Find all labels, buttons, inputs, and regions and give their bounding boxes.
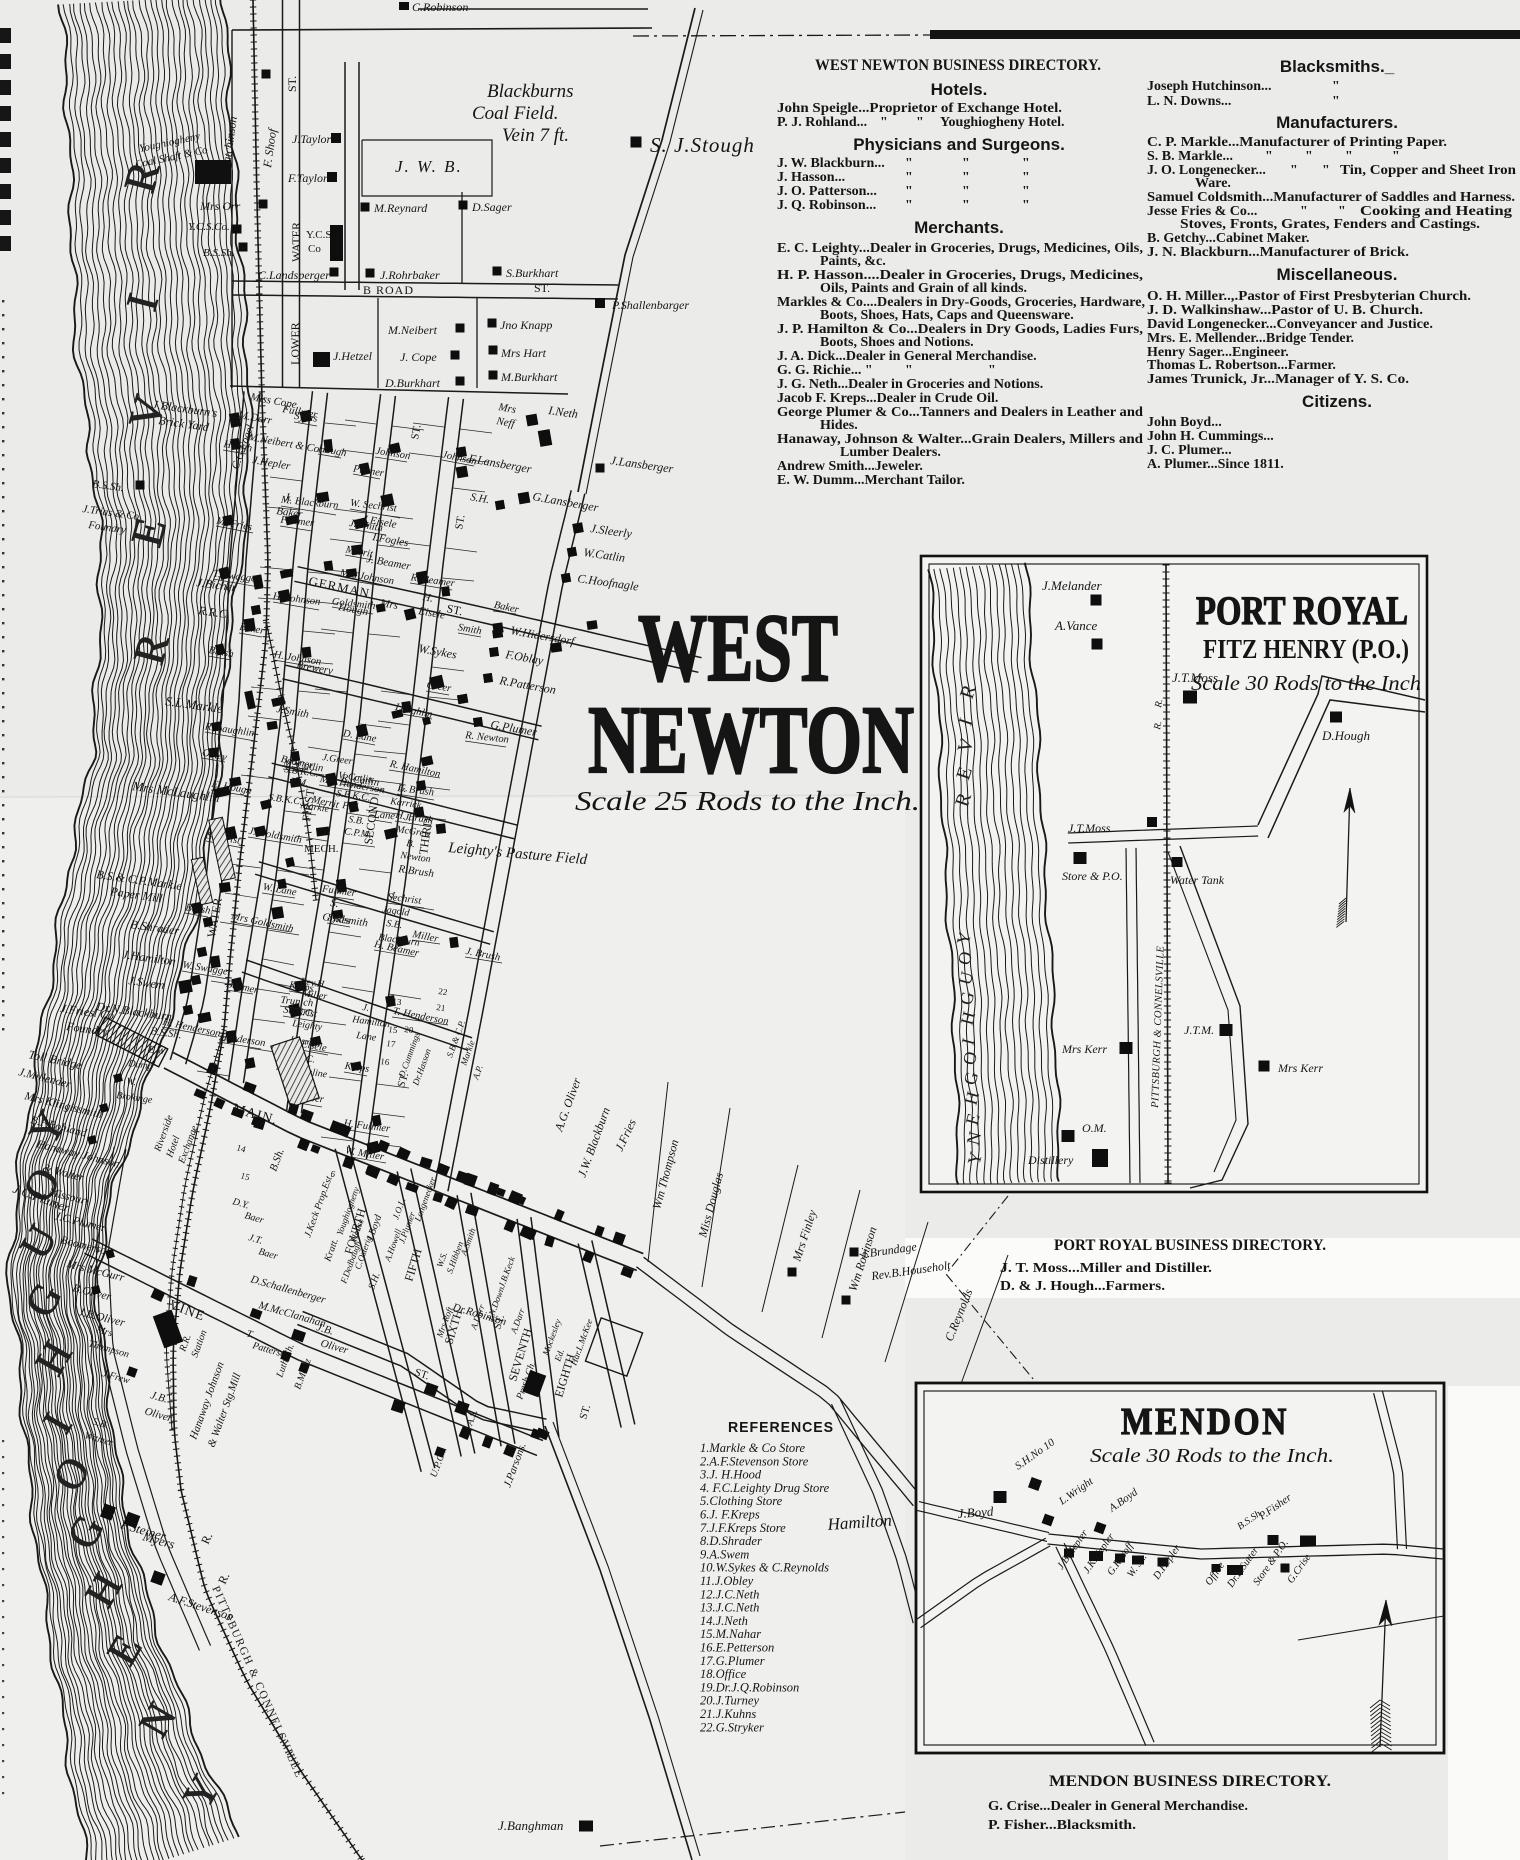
svg-text:16.E.Petterson: 16.E.Petterson (700, 1641, 774, 1655)
svg-text:E. W. Dumm...Merchant Tailor.: E. W. Dumm...Merchant Tailor. (777, 473, 965, 488)
svg-text:Hotels.: Hotels. (931, 80, 988, 99)
svg-text:J. C. Plumer...: J. C. Plumer... (1147, 443, 1232, 458)
svg-text:19.Dr.J.Q.Robinson: 19.Dr.J.Q.Robinson (700, 1680, 799, 1694)
svg-text:": " (1290, 163, 1298, 178)
svg-text:P.Shallenbarger: P.Shallenbarger (611, 298, 689, 312)
svg-text:J.T.Moss: J.T.Moss (1068, 821, 1111, 835)
svg-text:J.Boyd: J.Boyd (957, 1504, 994, 1521)
svg-text:J. T. Moss...Miller and Distil: J. T. Moss...Miller and Distiller. (1000, 1261, 1212, 1276)
svg-text:Jacob F. Kreps...Dealer in Cru: Jacob F. Kreps...Dealer in Crude Oil. (777, 391, 998, 406)
svg-text:J.T.M.: J.T.M. (1184, 1023, 1214, 1037)
svg-text:C. P. Markle...Manufacturer of: C. P. Markle...Manufacturer of Printing … (1147, 135, 1447, 150)
svg-text:S.: S. (330, 897, 340, 910)
svg-text:REFERENCES: REFERENCES (728, 1419, 834, 1436)
svg-text:P. J. Rohland...: P. J. Rohland... (777, 115, 867, 130)
svg-text:F.Taylor: F.Taylor (287, 171, 328, 185)
svg-text:PORT ROYAL: PORT ROYAL (1196, 588, 1408, 633)
svg-text:O.M.: O.M. (1082, 1121, 1107, 1135)
svg-text:J.Melander: J.Melander (1042, 578, 1103, 593)
svg-text:": " (1022, 156, 1030, 171)
svg-text:ST.: ST. (409, 424, 423, 441)
svg-text:J.Hetzel: J.Hetzel (333, 349, 373, 363)
svg-text:10.W.Sykes & C.Reynolds: 10.W.Sykes & C.Reynolds (700, 1561, 829, 1575)
svg-text:Y.C.S.Co.: Y.C.S.Co. (188, 221, 230, 233)
svg-text:W.: W. (126, 1076, 137, 1088)
svg-text:1.Markle & Co Store: 1.Markle & Co Store (700, 1441, 806, 1455)
svg-text:M.Neibert: M.Neibert (387, 323, 438, 337)
svg-text:D.Burkhart: D.Burkhart (384, 376, 441, 390)
svg-text:MECH.: MECH. (304, 843, 339, 855)
svg-text:Scale 30 Rods to the Inch.: Scale 30 Rods to the Inch. (1090, 1445, 1334, 1467)
svg-text:": " (905, 363, 913, 378)
svg-text:Boots, Shoes, Hats, Caps and Q: Boots, Shoes, Hats, Caps and Queensware. (820, 308, 1074, 323)
svg-text:Boots, Shoes and Notions.: Boots, Shoes and Notions. (820, 335, 974, 350)
svg-text:": " (962, 198, 970, 213)
svg-text:8.D.Shrader: 8.D.Shrader (700, 1534, 762, 1548)
svg-text:James Trunick, Jr...Manager of: James Trunick, Jr...Manager of Y. S. Co. (1147, 372, 1409, 387)
svg-text:Ware.: Ware. (1195, 176, 1231, 191)
svg-text:Mrs Hart: Mrs Hart (500, 346, 547, 360)
svg-text:C.Landsperger: C.Landsperger (258, 268, 330, 282)
svg-text:Manufacturers.: Manufacturers. (1276, 113, 1398, 132)
svg-text:B.S.Sh.: B.S.Sh. (203, 247, 234, 259)
svg-text:Coal Field.: Coal Field. (472, 103, 559, 124)
svg-text:WEST NEWTON BUSINESS DIRECTORY: WEST NEWTON BUSINESS DIRECTORY. (815, 57, 1101, 74)
svg-text:": " (905, 198, 913, 213)
svg-text:Mrs Orr: Mrs Orr (199, 199, 241, 213)
svg-text:": " (1305, 149, 1313, 164)
svg-text:PORT ROYAL BUSINESS DIRECTORY.: PORT ROYAL BUSINESS DIRECTORY. (1054, 1237, 1326, 1254)
svg-text:J. Hasson...: J. Hasson... (777, 170, 845, 185)
svg-text:17.G.Plumer: 17.G.Plumer (700, 1654, 765, 1668)
svg-text:John H. Cummings...: John H. Cummings... (1147, 429, 1274, 444)
svg-text:J. G. Neth...Dealer in Groceri: J. G. Neth...Dealer in Groceries and Not… (777, 377, 1043, 392)
svg-text:J. W. B.: J. W. B. (395, 157, 463, 176)
svg-text:B.: B. (406, 838, 416, 850)
svg-text:Paints, &c.: Paints, &c. (820, 254, 886, 269)
svg-text:J. Q. Robinson...: J. Q. Robinson... (777, 198, 876, 213)
svg-text:M.Burkhart: M.Burkhart (500, 370, 558, 384)
svg-text:H.: H. (420, 591, 434, 605)
svg-text:ST.: ST. (534, 281, 550, 295)
svg-text:Jno Knapp: Jno Knapp (500, 318, 552, 332)
svg-text:J. Cope: J. Cope (400, 350, 437, 364)
svg-text:Mrs Kerr: Mrs Kerr (1277, 1061, 1323, 1075)
svg-text:B ROAD: B ROAD (363, 283, 414, 297)
svg-text:WEST: WEST (638, 594, 838, 701)
svg-text:": " (962, 170, 970, 185)
svg-text:6.J. F.Kreps: 6.J. F.Kreps (700, 1508, 760, 1522)
svg-text:J.Banghman: J.Banghman (498, 1818, 563, 1833)
svg-text:Oils, Paints and Grain of all: Oils, Paints and Grain of all kinds. (820, 281, 1027, 296)
svg-text:Miscellaneous.: Miscellaneous. (1277, 265, 1398, 284)
svg-text:MENDON BUSINESS DIRECTORY.: MENDON BUSINESS DIRECTORY. (1049, 1773, 1331, 1790)
svg-text:18.Office: 18.Office (700, 1667, 747, 1681)
svg-text:S. J.Stough: S. J.Stough (650, 133, 755, 157)
svg-text:J. A. Dick...Dealer in General: J. A. Dick...Dealer in General Merchandi… (777, 349, 1037, 364)
svg-text:Hides.: Hides. (820, 418, 858, 433)
svg-text:Physicians and Surgeons.: Physicians and Surgeons. (853, 135, 1065, 154)
svg-text:": " (905, 170, 913, 185)
svg-text:Hanaway, Johnson & Walter...Gr: Hanaway, Johnson & Walter...Grain Dealer… (777, 432, 1143, 447)
svg-text:": " (962, 184, 970, 199)
svg-text:A. Plumer...Since 1811.: A. Plumer...Since 1811. (1147, 457, 1284, 472)
svg-text:S.B.: S.B. (348, 814, 365, 827)
svg-text:D. & J. Hough...Farmers.: D. & J. Hough...Farmers. (1000, 1279, 1165, 1294)
svg-text:John Speigle...Proprietor of E: John Speigle...Proprietor of Exchange Ho… (777, 101, 1062, 116)
svg-text:": " (1265, 149, 1273, 164)
svg-text:": " (905, 156, 913, 171)
svg-text:J.Taylor: J.Taylor (292, 132, 332, 146)
svg-text:Samuel Coldsmith...Manufacture: Samuel Coldsmith...Manufacturer of Saddl… (1147, 190, 1515, 205)
svg-text:MENDON: MENDON (1121, 1401, 1289, 1443)
svg-text:S. B. Markle...: S. B. Markle... (1147, 149, 1233, 164)
svg-text:A.Vance: A.Vance (1054, 618, 1097, 633)
svg-text:L. N. Downs...: L. N. Downs... (1147, 94, 1231, 109)
svg-text:Merchants.: Merchants. (914, 218, 1004, 237)
svg-text:D.Sager: D.Sager (471, 200, 512, 214)
svg-text:": " (1332, 79, 1340, 94)
svg-text:21.J.Kuhns: 21.J.Kuhns (700, 1707, 756, 1721)
svg-text:Distillery: Distillery (1027, 1153, 1074, 1167)
svg-text:FITZ HENRY (P.O.): FITZ HENRY (P.O.) (1203, 634, 1409, 664)
svg-text:Citizens.: Citizens. (1302, 392, 1372, 411)
svg-text:NEWTON: NEWTON (588, 686, 914, 793)
svg-text:Lumber Dealers.: Lumber Dealers. (840, 445, 941, 460)
svg-text:C.Robinson: C.Robinson (412, 0, 468, 14)
svg-text:John Boyd...: John Boyd... (1147, 415, 1222, 430)
svg-text:": " (1022, 198, 1030, 213)
svg-text:S.B.: S.B. (386, 918, 403, 931)
svg-text:12.J.C.Neth: 12.J.C.Neth (700, 1587, 759, 1601)
svg-text:": " (1022, 184, 1030, 199)
svg-text:": " (962, 156, 970, 171)
svg-text:Water Tank: Water Tank (1170, 873, 1225, 887)
svg-text:22.G.Stryker: 22.G.Stryker (700, 1720, 764, 1734)
svg-text:G. Crise...Dealer in General M: G. Crise...Dealer in General Merchandise… (988, 1799, 1248, 1814)
svg-text:": " (916, 115, 924, 130)
svg-text:D.Hough: D.Hough (1321, 728, 1370, 743)
svg-text:Blacksmiths._: Blacksmiths._ (1280, 57, 1395, 76)
svg-text:Vein 7 ft.: Vein 7 ft. (502, 125, 569, 146)
svg-text:Tin, Copper and Sheet Iron: Tin, Copper and Sheet Iron (1340, 163, 1516, 178)
svg-text:3.J. H.Hood: 3.J. H.Hood (699, 1468, 762, 1482)
svg-text:Co: Co (308, 243, 321, 255)
svg-text:13.J.C.Neth: 13.J.C.Neth (700, 1601, 759, 1615)
svg-text:5.Clothing Store: 5.Clothing Store (700, 1494, 783, 1508)
svg-text:Andrew Smith...Jeweler.: Andrew Smith...Jeweler. (777, 459, 923, 474)
svg-text:S.Burkhart: S.Burkhart (506, 266, 559, 280)
svg-text:14.J.Neth: 14.J.Neth (700, 1614, 748, 1628)
svg-text:ST.: ST. (453, 514, 467, 531)
svg-text:J.Rohrbaker: J.Rohrbaker (380, 268, 440, 282)
svg-text:": " (1392, 149, 1400, 164)
svg-text:": " (905, 184, 913, 199)
svg-text:9.A.Swem: 9.A.Swem (700, 1547, 749, 1561)
svg-text:J. W. Blackburn...: J. W. Blackburn... (777, 156, 885, 171)
svg-text:O. H. Miller..,.Pastor of Firs: O. H. Miller..,.Pastor of First Presbyte… (1147, 289, 1471, 304)
svg-text:Blackburns: Blackburns (487, 81, 574, 102)
svg-text:ST.: ST. (285, 76, 299, 92)
svg-text:11.J.Obley: 11.J.Obley (700, 1574, 754, 1588)
svg-text:": " (1022, 170, 1030, 185)
svg-text:20.J.Turney: 20.J.Turney (700, 1694, 759, 1708)
svg-text:J. O. Patterson...: J. O. Patterson... (777, 184, 877, 199)
svg-text:4. F.C.Leighty Drug Store: 4. F.C.Leighty Drug Store (700, 1481, 830, 1495)
svg-text:David Longenecker...Conveyance: David Longenecker...Conveyancer and Just… (1147, 317, 1433, 332)
svg-text:Store & P.O.: Store & P.O. (1062, 869, 1123, 883)
svg-text:22: 22 (438, 986, 448, 997)
svg-text:15.M.Nahar: 15.M.Nahar (700, 1627, 761, 1641)
svg-text:M.Reynard: M.Reynard (373, 201, 428, 215)
svg-text:2.A.F.Stevenson Store: 2.A.F.Stevenson Store (700, 1454, 809, 1468)
svg-text:": " (880, 115, 888, 130)
svg-text:Thomas L. Robertson...Farmer.: Thomas L. Robertson...Farmer. (1147, 358, 1336, 373)
svg-text:R.: R. (1152, 720, 1165, 731)
svg-text:B. Getchy...Cabinet Maker.: B. Getchy...Cabinet Maker. (1147, 231, 1309, 246)
svg-text:21: 21 (436, 1002, 446, 1013)
svg-text:WATER: WATER (289, 222, 303, 262)
svg-text:LOWER: LOWER (288, 322, 302, 365)
svg-text:Youghiogheny Hotel.: Youghiogheny Hotel. (940, 115, 1064, 130)
svg-text:": " (1345, 149, 1353, 164)
svg-text:R.: R. (1153, 698, 1166, 709)
svg-text:Mrs Kerr: Mrs Kerr (1061, 1042, 1107, 1056)
svg-text:G.: G. (398, 782, 409, 794)
svg-text:": " (1332, 94, 1340, 109)
svg-text:J. D. Walkinshaw...Pastor of U: J. D. Walkinshaw...Pastor of U. B. Churc… (1147, 303, 1423, 318)
svg-text:7.J.F.Kreps Store: 7.J.F.Kreps Store (700, 1521, 786, 1535)
svg-text:": " (1322, 163, 1330, 178)
svg-text:Scale 30 Rods to the Inch: Scale 30 Rods to the Inch (1191, 671, 1421, 695)
svg-text:Stoves, Fronts, Grates, Fender: Stoves, Fronts, Grates, Fenders and Cast… (1180, 217, 1480, 232)
svg-text:P. Fisher...Blacksmith.: P. Fisher...Blacksmith. (988, 1818, 1136, 1833)
svg-text:G. G. Richie... ": G. G. Richie... " (777, 363, 873, 378)
svg-text:Scale 25 Rods to the Inch.: Scale 25 Rods to the Inch. (575, 786, 920, 816)
svg-text:J.T.Moss: J.T.Moss (1172, 670, 1218, 685)
svg-text:J. N. Blackburn...Manufacturer: J. N. Blackburn...Manufacturer of Brick. (1147, 245, 1409, 260)
svg-text:Joseph Hutchinson...: Joseph Hutchinson... (1147, 79, 1271, 94)
svg-text:Mrs. E. Mellender...Bridge Ten: Mrs. E. Mellender...Bridge Tender. (1147, 331, 1354, 346)
svg-text:": " (988, 363, 996, 378)
